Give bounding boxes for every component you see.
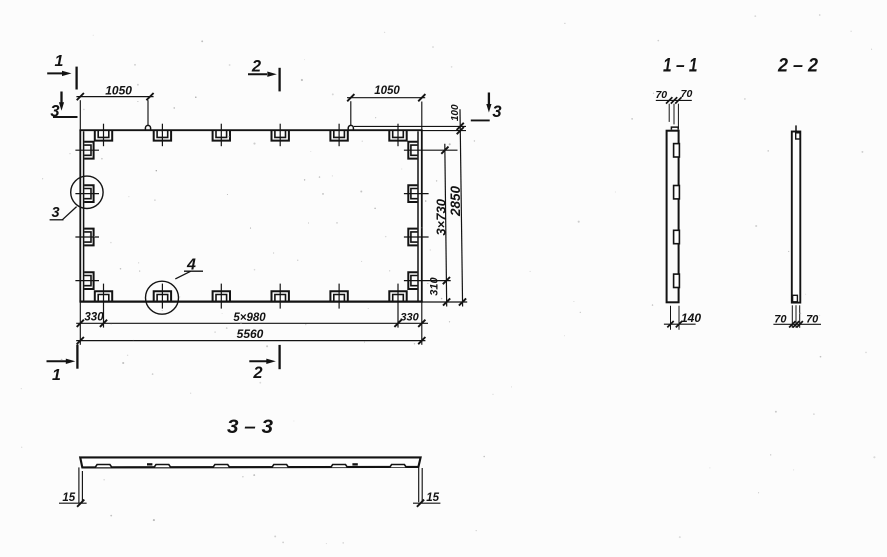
svg-text:3: 3	[492, 103, 501, 121]
svg-text:330: 330	[84, 311, 104, 323]
svg-text:2 – 2: 2 – 2	[777, 56, 818, 77]
svg-text:1 – 1: 1 – 1	[663, 56, 698, 77]
svg-text:3: 3	[51, 205, 59, 221]
svg-text:1050: 1050	[374, 85, 400, 97]
svg-text:140: 140	[681, 311, 701, 325]
svg-text:70: 70	[774, 313, 787, 325]
svg-text:70: 70	[655, 89, 667, 101]
svg-text:5560: 5560	[237, 327, 264, 341]
svg-text:70: 70	[806, 313, 819, 325]
svg-text:4: 4	[186, 257, 196, 274]
svg-text:15: 15	[426, 492, 439, 504]
svg-text:70: 70	[681, 88, 693, 100]
svg-text:3×730: 3×730	[433, 198, 448, 235]
svg-text:310: 310	[429, 277, 441, 296]
svg-text:330: 330	[400, 311, 419, 323]
svg-text:2: 2	[251, 58, 261, 76]
svg-text:1: 1	[52, 367, 61, 384]
svg-text:2850: 2850	[448, 185, 463, 217]
svg-text:1050: 1050	[105, 84, 132, 98]
svg-text:100: 100	[450, 104, 461, 121]
svg-text:1: 1	[55, 53, 64, 70]
svg-text:2: 2	[252, 364, 262, 382]
svg-text:3 – 3: 3 – 3	[227, 416, 273, 438]
svg-text:15: 15	[62, 492, 75, 504]
svg-text:5×980: 5×980	[233, 312, 266, 324]
